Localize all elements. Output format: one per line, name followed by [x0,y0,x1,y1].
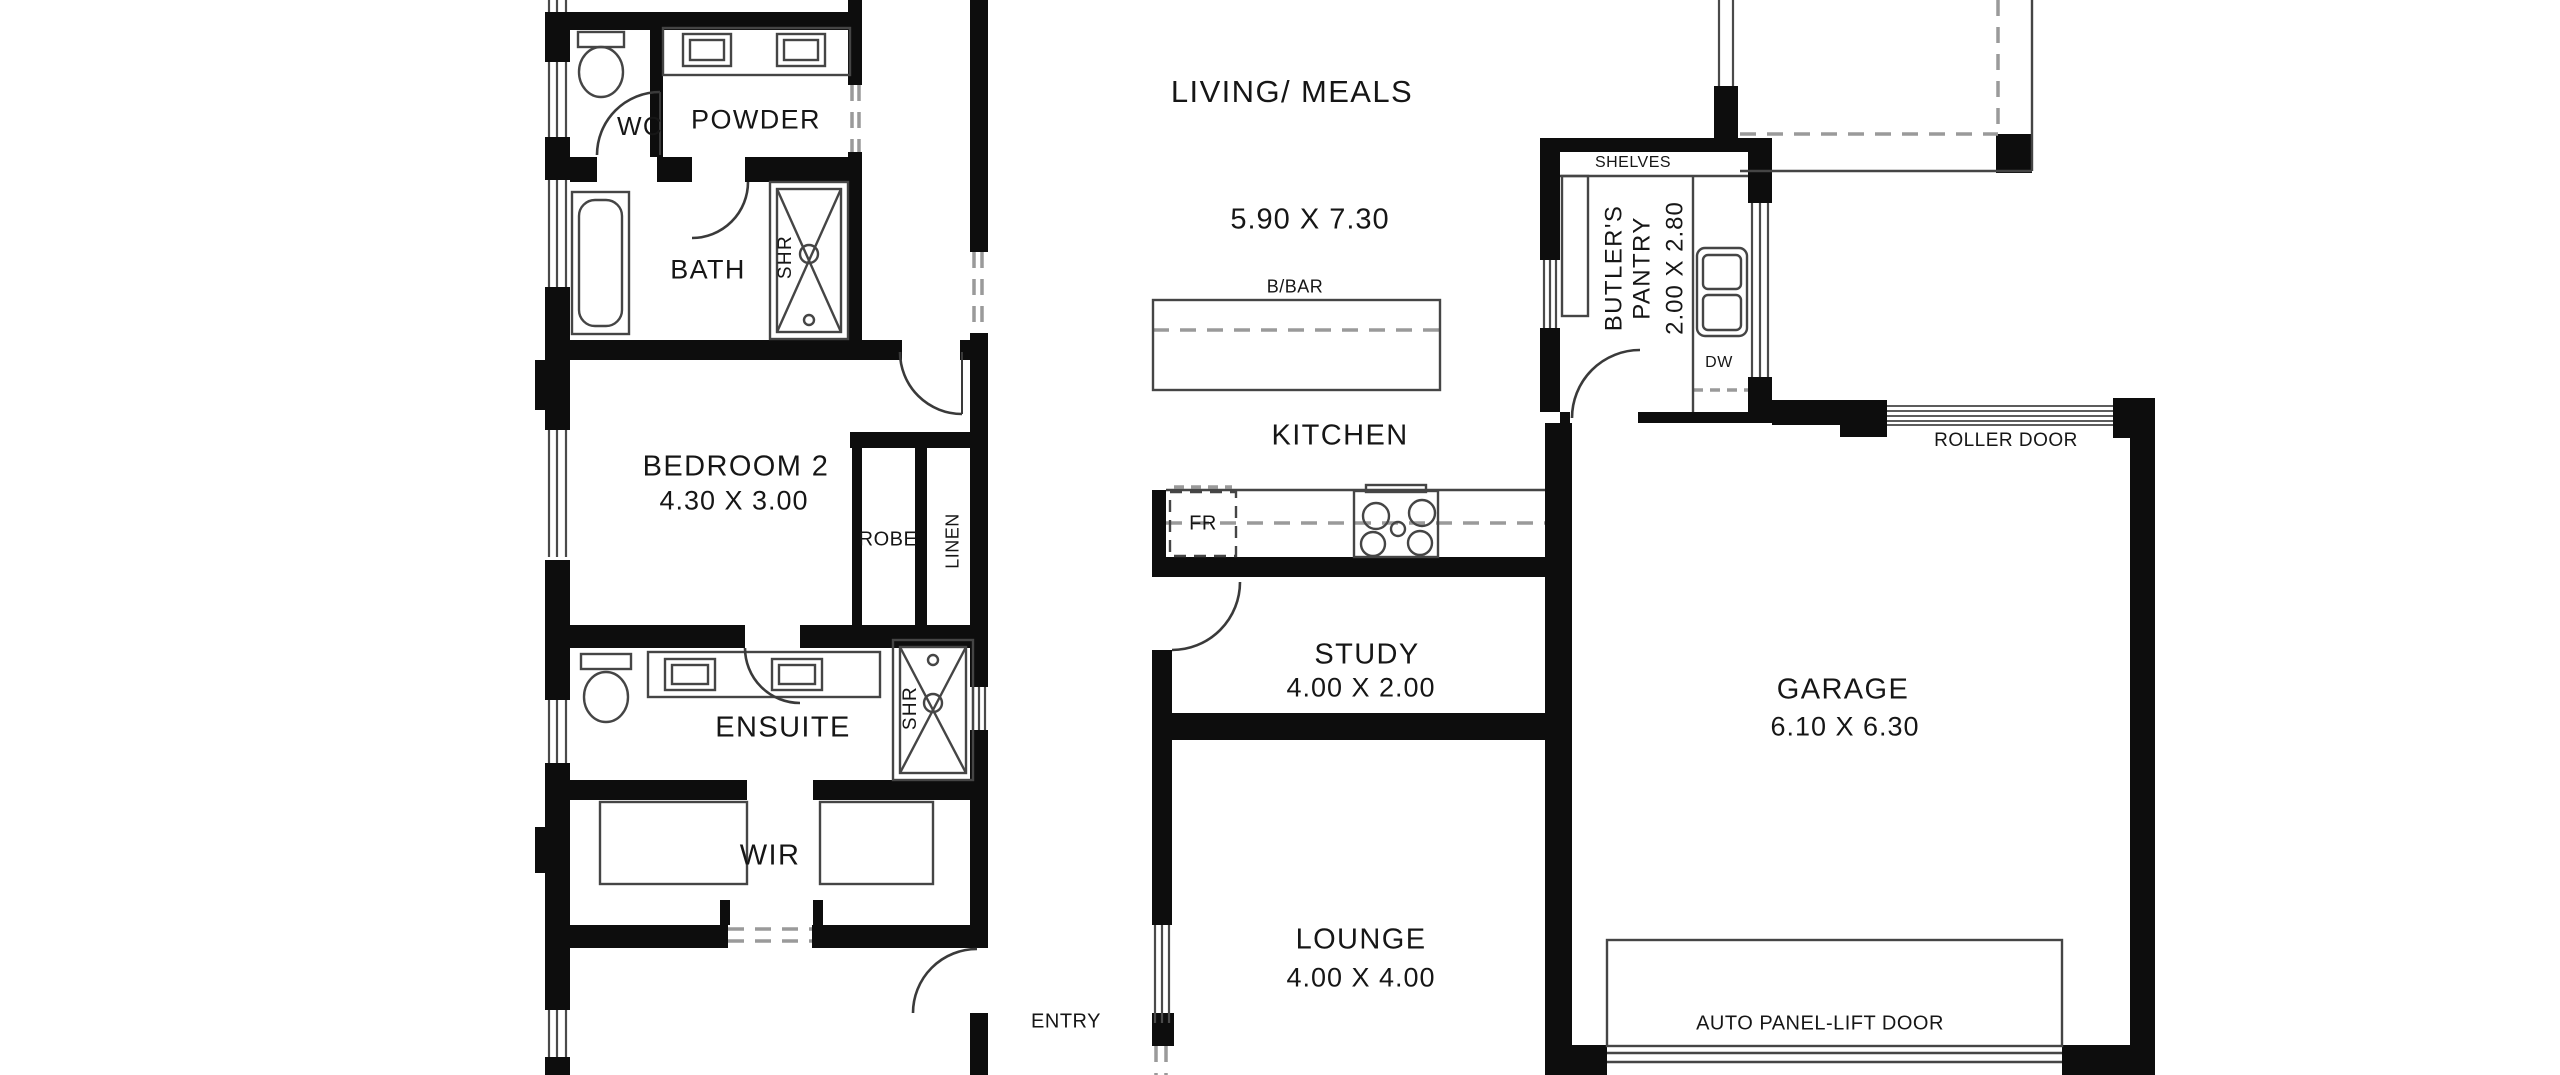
floor-plan: WC POWDER BATH SHR BEDROOM 2 4.30 X 3.00… [0,0,2560,1075]
fixture-label-linen: LINEN [943,513,964,569]
room-label-butlers-pantry: BUTLER'S PANTRY 2.00 X 2.80 [1601,201,1690,335]
annotation-panel-lift-door: AUTO PANEL-LIFT DOOR [1696,1013,1944,1036]
fixture-label-shelves: SHELVES [1595,154,1671,172]
fixture-label-fridge: FR [1189,513,1217,536]
room-label-bedroom2: BEDROOM 2 [643,450,830,483]
room-dims-living-meals: 5.90 X 7.30 [1230,203,1389,236]
room-label-entry: ENTRY [1031,1011,1101,1034]
room-dims-lounge: 4.00 X 4.00 [1286,962,1435,993]
pantry-label-line1: BUTLER'S [1601,205,1628,331]
room-label-wir: WIR [740,839,801,872]
room-label-lounge: LOUNGE [1296,923,1427,956]
fixture-label-shower-ensuite: SHR [900,686,922,730]
room-label-garage: GARAGE [1777,673,1910,706]
room-label-ensuite: ENSUITE [715,711,851,744]
room-label-wc: WC [617,112,663,142]
room-dims-bedroom2: 4.30 X 3.00 [659,485,808,516]
room-label-study: STUDY [1314,638,1419,671]
fixture-label-robe: ROBE [859,529,918,552]
room-dims-butlers-pantry: 2.00 X 2.80 [1662,201,1690,335]
room-label-kitchen: KITCHEN [1271,419,1408,452]
room-label-powder: POWDER [691,104,821,135]
door-arcs-layer [597,92,1640,1013]
pantry-label-line2: PANTRY [1628,216,1655,320]
walls-layer [535,0,2155,1075]
fixture-label-shower-bath: SHR [775,235,797,279]
annotation-roller-door: ROLLER DOOR [1934,430,2078,452]
fixture-label-breakfast-bar: B/BAR [1267,277,1324,298]
room-label-living-meals: LIVING/ MEALS [1171,74,1413,110]
room-dims-study: 4.00 X 2.00 [1286,672,1435,703]
room-label-bath: BATH [670,254,746,285]
room-dims-garage: 6.10 X 6.30 [1770,711,1919,742]
floor-plan-drawing [0,0,2560,1075]
fixture-label-dishwasher: DW [1705,354,1733,372]
